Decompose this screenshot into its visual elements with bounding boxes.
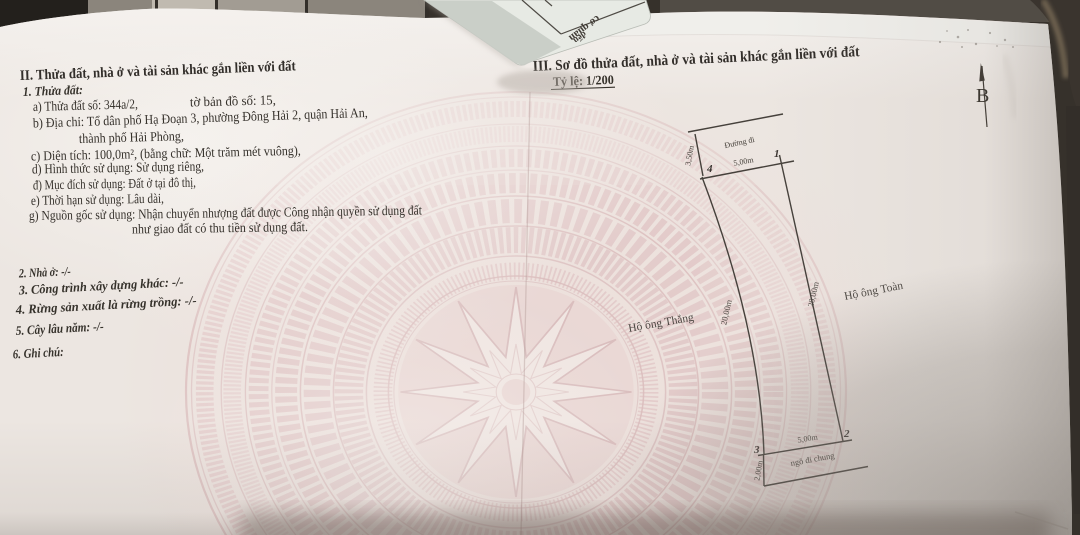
svg-text:đ) Mục đích sử dụng: Đất ở tại: đ) Mục đích sử dụng: Đất ở tại đô thị,	[33, 175, 196, 193]
svg-text:như giao đất có thu tiền sử dụ: như giao đất có thu tiền sử dụng đất.	[132, 219, 308, 236]
svg-text:1. Thửa đất:: 1. Thửa đất:	[23, 82, 83, 99]
svg-text:a) Thửa đất số: 344a/2,: a) Thửa đất số: 344a/2,	[33, 96, 138, 114]
svg-text:thành phố Hải Phòng,: thành phố Hải Phòng,	[79, 128, 184, 146]
svg-text:tờ bản đồ số: 15,: tờ bản đồ số: 15,	[190, 92, 276, 109]
svg-text:6. Ghi chú:: 6. Ghi chú:	[12, 344, 64, 362]
svg-text:d) Hình thức sử dụng: Sử dụng: d) Hình thức sử dụng: Sử dụng riêng,	[32, 159, 204, 177]
svg-text:e) Thời hạn sử dụng: Lâu dài,: e) Thời hạn sử dụng: Lâu dài,	[31, 191, 164, 208]
svg-text:2. Nhà ở: -/-: 2. Nhà ở: -/-	[18, 264, 71, 280]
svg-text:4: 4	[706, 163, 713, 175]
